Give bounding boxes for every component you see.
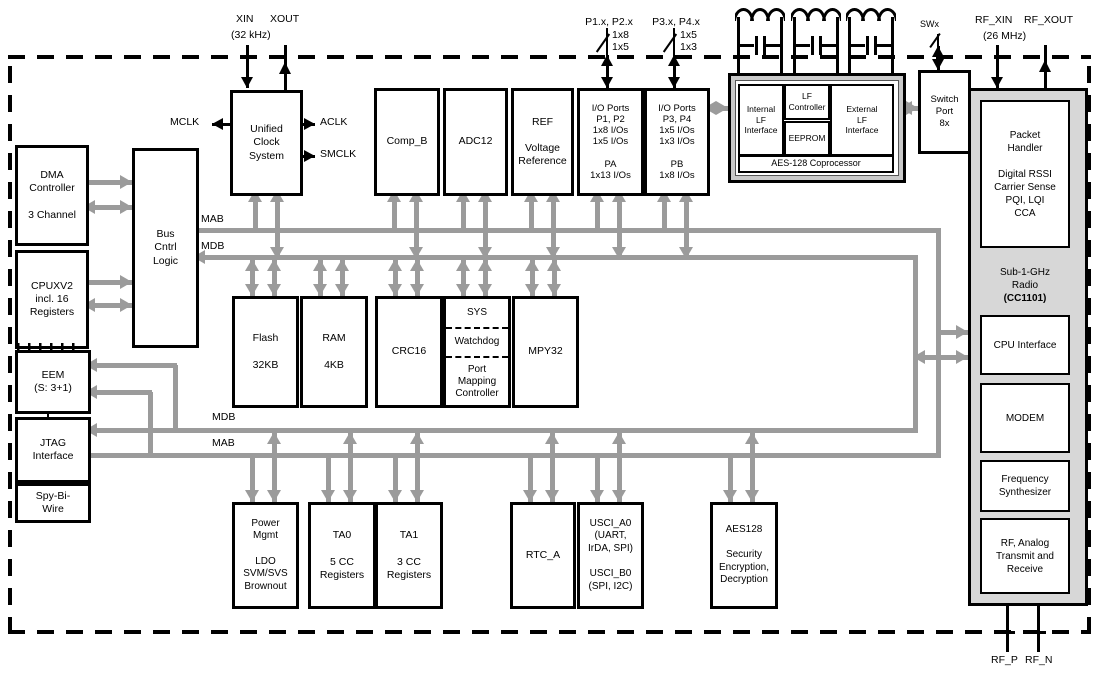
clock-label-aclk: ACLK [320, 117, 347, 129]
clock-label-mclk: MCLK [170, 117, 199, 129]
arrowhead [267, 490, 281, 502]
arrowhead [601, 55, 613, 66]
lf-inner-panel: Internal LF Interface LF Controller EEPR… [735, 80, 899, 176]
arrowhead [313, 259, 327, 271]
block-aes128: AES128 Security Encryption, Decryption [710, 502, 778, 609]
pin-label-rf-n: RF_N [1025, 655, 1052, 667]
wire [173, 365, 178, 432]
arrowhead [546, 247, 560, 259]
block-modem: MODEM [980, 383, 1070, 453]
block-ta0: TA0 5 CC Registers [308, 502, 376, 609]
inductor-icon [735, 8, 785, 21]
arrowhead [956, 325, 968, 339]
arrowhead [478, 247, 492, 259]
pin-width-p34-1x3: 1x3 [680, 42, 697, 54]
pin-label-swx: SWx [920, 20, 939, 30]
arrowhead [267, 432, 281, 444]
pin-label-rf-p: RF_P [991, 655, 1018, 667]
block-frequency-synthesizer: Frequency Synthesizer [980, 460, 1070, 512]
block-usci: USCI_A0 (UART, IrDA, SPI) USCI_B0 (SPI, … [577, 502, 644, 609]
pin-label-xout: XOUT [270, 14, 299, 26]
arrowhead [932, 46, 944, 57]
arrowhead [547, 259, 561, 271]
arrowhead [745, 490, 759, 502]
arrowhead [245, 490, 259, 502]
arrowhead [723, 490, 737, 502]
arrowhead [612, 490, 626, 502]
block-io-ports-p3-p4: I/O Ports P3, P4 1x5 I/Os 1x3 I/Os PB 1x… [644, 88, 710, 196]
wire [193, 228, 941, 233]
capacitor-icon [737, 44, 754, 47]
block-diagram-canvas: DMA Controller 3 Channel CPUXV2 incl. 16… [0, 0, 1100, 677]
block-external-lf-interface: External LF Interface [830, 84, 894, 156]
block-sub1ghz-radio: Packet Handler Digital RSSI Carrier Sens… [968, 88, 1088, 606]
arrowhead [120, 275, 132, 289]
cpu-eem-bus-ticks [17, 343, 81, 350]
lc-resonator-icon [793, 8, 839, 73]
arrowhead [601, 77, 613, 88]
radio-chip-name: (CC1101) [971, 292, 1079, 305]
wire [913, 257, 918, 432]
pin-label-rf-xin: RF_XIN [975, 15, 1012, 27]
block-ta1: TA1 3 CC Registers [375, 502, 443, 609]
arrowhead [241, 77, 253, 88]
arrowhead [270, 247, 284, 259]
block-bus-cntrl-logic: Bus Cntrl Logic [132, 148, 199, 348]
block-internal-lf-interface: Internal LF Interface [738, 84, 784, 156]
block-crc16: CRC16 [375, 296, 443, 408]
arrowhead [410, 259, 424, 271]
arrowhead [388, 490, 402, 502]
arrowhead [956, 350, 968, 364]
arrowhead [212, 118, 223, 130]
arrowhead [343, 432, 357, 444]
block-dma-controller: DMA Controller 3 Channel [15, 145, 89, 246]
arrowhead [590, 490, 604, 502]
arrowhead [304, 150, 315, 162]
block-jtag-interface: JTAG Interface [15, 417, 91, 483]
arrowhead [525, 259, 539, 271]
arrowhead [523, 490, 537, 502]
block-port-mapping-controller: Port Mapping Controller [446, 356, 508, 405]
block-comp-b: Comp_B [374, 88, 440, 196]
arrowhead [410, 284, 424, 296]
block-packet-handler: Packet Handler Digital RSSI Carrier Sens… [980, 100, 1070, 248]
bus-label-mab-bottom: MAB [212, 437, 235, 449]
block-unified-clock-system: Unified Clock System [230, 90, 303, 196]
arrowhead [388, 284, 402, 296]
block-cpu-interface: CPU Interface [980, 315, 1070, 375]
block-switch-port: Switch Port 8x [918, 70, 971, 154]
arrowhead [525, 284, 539, 296]
block-mpy32: MPY32 [512, 296, 579, 408]
inductor-icon [846, 8, 896, 21]
block-adc12: ADC12 [443, 88, 508, 196]
arrowhead [410, 432, 424, 444]
pin-label-p3-p4: P3.x, P4.x [644, 17, 708, 29]
block-io-ports-p1-p2: I/O Ports P1, P2 1x8 I/Os 1x5 I/Os PA 1x… [577, 88, 644, 196]
arrowhead [668, 77, 680, 88]
arrowhead [545, 432, 559, 444]
block-power-mgmt: Power Mgmt LDO SVM/SVS Brownout [232, 502, 299, 609]
arrowhead [245, 284, 259, 296]
arrowhead [409, 247, 423, 259]
wire [85, 453, 941, 458]
arrowhead [245, 259, 259, 271]
arrowhead [478, 259, 492, 271]
arrowhead [388, 259, 402, 271]
arrowhead [343, 490, 357, 502]
pin-label-xin: XIN [236, 14, 254, 26]
arrowhead [547, 284, 561, 296]
arrowhead [279, 62, 291, 74]
bus-label-mdb-top: MDB [201, 240, 224, 252]
block-lf-controller: LF Controller [784, 84, 830, 120]
arrowhead [1039, 60, 1051, 72]
radio-title: Sub-1-GHz Radio [1000, 267, 1050, 291]
capacitor-icon [848, 44, 865, 47]
pin-width-p12-1x8: 1x8 [612, 30, 629, 42]
arrowhead [612, 247, 626, 259]
arrowhead [313, 284, 327, 296]
pin-label-p1-p2: P1.x, P2.x [577, 17, 641, 29]
block-sys-watchdog-portmap: SYS Watchdog Port Mapping Controller [443, 296, 511, 408]
arrowhead [745, 432, 759, 444]
arrowhead [545, 490, 559, 502]
block-sys: SYS [446, 299, 508, 327]
arrowhead [120, 175, 132, 189]
bus-label-mdb-bottom: MDB [212, 411, 235, 423]
block-cpuxv2: CPUXV2 incl. 16 Registers [15, 250, 89, 349]
wire [85, 428, 918, 433]
block-aes-128-coprocessor: AES-128 Coprocessor [738, 155, 894, 173]
arrowhead [716, 101, 728, 115]
arrowhead [335, 284, 349, 296]
block-eeprom: EEPROM [784, 121, 830, 156]
radio-sub1ghz-label: Sub-1-GHz Radio (CC1101) [971, 253, 1079, 318]
wire [148, 392, 153, 457]
pin-width-p12-1x5: 1x5 [612, 42, 629, 54]
arrowhead [612, 432, 626, 444]
arrowhead [304, 118, 315, 130]
arrowhead [991, 77, 1003, 88]
arrowhead [120, 298, 132, 312]
block-eem: EEM (S: 3+1) [15, 350, 91, 414]
arrowhead [679, 247, 693, 259]
wire [936, 230, 941, 458]
pin-label-rf-xout: RF_XOUT [1024, 15, 1073, 27]
block-watchdog: Watchdog [446, 327, 508, 357]
block-rtc-a: RTC_A [510, 502, 576, 609]
wire [1006, 600, 1009, 652]
lc-resonator-icon [848, 8, 894, 73]
lc-resonator-icon [737, 8, 783, 73]
arrowhead [267, 259, 281, 271]
pin-label-xtal-freq: (32 kHz) [231, 30, 271, 42]
block-lf-coprocessor: Internal LF Interface LF Controller EEPR… [728, 73, 906, 183]
arrowhead [668, 55, 680, 66]
block-ram: RAM 4KB [300, 296, 368, 408]
arrowhead [478, 284, 492, 296]
arrowhead [456, 284, 470, 296]
block-rf-analog: RF, Analog Transmit and Receive [980, 518, 1070, 594]
arrowhead [932, 59, 944, 70]
clock-label-smclk: SMCLK [320, 149, 356, 161]
arrowhead [120, 200, 132, 214]
arrowhead [410, 490, 424, 502]
pin-label-rf-freq: (26 MHz) [983, 31, 1026, 43]
wire [85, 363, 177, 368]
arrowhead [267, 284, 281, 296]
arrowhead [906, 101, 918, 115]
inductor-icon [791, 8, 841, 21]
block-ref-voltage-reference: REF Voltage Reference [511, 88, 574, 196]
pin-width-p34-1x5: 1x5 [680, 30, 697, 42]
arrowhead [456, 259, 470, 271]
block-flash: Flash 32KB [232, 296, 299, 408]
arrowhead [321, 490, 335, 502]
wire [1037, 600, 1040, 652]
capacitor-icon [793, 44, 810, 47]
arrowhead [335, 259, 349, 271]
bus-label-mab-top: MAB [201, 213, 224, 225]
block-spy-bi-wire: Spy-Bi- Wire [15, 483, 91, 523]
